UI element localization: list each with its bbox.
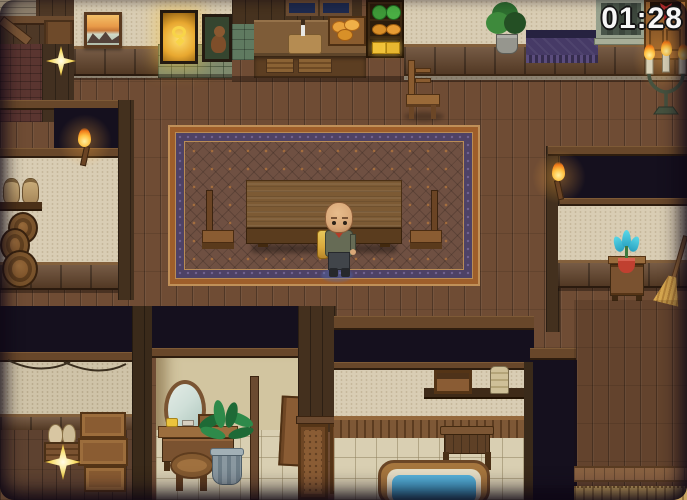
character-eye xyxy=(343,221,347,225)
character-head xyxy=(325,202,353,233)
cabbage xyxy=(372,5,387,20)
bread-loaf xyxy=(372,24,387,35)
jewelry-display-case xyxy=(160,10,198,64)
plant-foliage xyxy=(504,12,526,34)
shelf-board xyxy=(0,202,42,211)
necklace-pendant xyxy=(175,37,184,46)
candle-flame xyxy=(678,44,687,60)
painting-mountains xyxy=(87,27,119,43)
shelf-box xyxy=(434,370,472,394)
plant-pot xyxy=(212,455,242,485)
bathtub xyxy=(378,460,490,500)
room-shadow-band xyxy=(152,306,300,352)
barrel xyxy=(2,250,38,288)
vase-pot xyxy=(618,258,635,273)
towel xyxy=(444,434,490,454)
timer-label: 01:28 xyxy=(601,2,683,36)
wall-post xyxy=(132,306,152,500)
broom-handle xyxy=(670,235,687,283)
chair-leg xyxy=(409,107,414,119)
knife-handle xyxy=(301,19,305,25)
room-shadow-band xyxy=(334,330,534,364)
character-eye xyxy=(332,221,336,225)
produce-shelf xyxy=(366,0,404,58)
kitchen-window xyxy=(320,0,352,16)
gold-trinket xyxy=(166,418,178,427)
counter-basket xyxy=(298,58,332,73)
shelf-jar xyxy=(490,366,509,394)
knife-blade xyxy=(301,24,305,36)
trophy-display-case xyxy=(202,14,232,62)
room-lintel xyxy=(152,348,300,358)
stacked-crate xyxy=(84,466,126,492)
character-brow xyxy=(342,217,348,219)
stool-right-seat xyxy=(410,230,442,243)
game-viewport[interactable]: 01:28 xyxy=(0,0,687,500)
plant-pot xyxy=(496,34,518,54)
grain-sack xyxy=(3,178,20,204)
bread-crate xyxy=(328,16,366,46)
floor-mat xyxy=(574,486,687,500)
stool-left-seat xyxy=(202,230,234,243)
plant-leaf xyxy=(227,425,255,442)
wall-base-shadow xyxy=(232,76,404,82)
counter-basket xyxy=(266,58,294,73)
cheese xyxy=(386,42,400,54)
shelf-row xyxy=(370,21,400,36)
comb xyxy=(182,420,194,426)
candle-flame xyxy=(644,44,655,60)
trophy-creature-head xyxy=(214,26,225,37)
purple-cloth-bench xyxy=(526,38,598,56)
bread-loaf xyxy=(386,24,401,35)
bathroom-wainscot xyxy=(334,416,530,440)
candelabra xyxy=(642,40,687,118)
character-brow xyxy=(331,217,337,219)
kitchen-window xyxy=(286,0,318,16)
character-boot xyxy=(341,268,350,277)
wooden-screen-panel xyxy=(298,424,328,500)
flower-vase xyxy=(612,230,642,274)
landscape-painting xyxy=(84,12,122,48)
candle-flame xyxy=(661,40,672,56)
stool-right-front xyxy=(410,243,442,249)
wainscot xyxy=(74,46,158,76)
room-lintel xyxy=(530,348,576,360)
trophy-creature-body xyxy=(211,35,226,53)
cutting-board xyxy=(288,34,322,54)
wall-post xyxy=(524,362,533,500)
gold-necklace xyxy=(172,26,186,38)
wall-pillar xyxy=(298,306,336,432)
character-boot xyxy=(329,268,338,277)
stacked-crate xyxy=(80,412,126,438)
torch-flame xyxy=(552,162,565,181)
room-lintel xyxy=(334,316,534,330)
wall-post xyxy=(118,100,134,300)
shelf-row xyxy=(370,39,400,55)
player-character[interactable] xyxy=(316,200,358,286)
maroon-brick-wall xyxy=(0,44,42,122)
shelf-row xyxy=(370,4,400,19)
dark-gap xyxy=(533,360,577,500)
grain-sack xyxy=(22,178,39,204)
bathtub-water xyxy=(392,475,476,500)
cheese xyxy=(372,42,386,54)
chair-slat xyxy=(415,78,431,83)
character-arm xyxy=(350,234,356,250)
hanging-ropes xyxy=(4,358,128,376)
room-shadow-band xyxy=(0,306,148,356)
wall-base-shadow xyxy=(74,74,158,80)
chair-leg xyxy=(431,105,436,119)
wood-step-band xyxy=(574,466,687,482)
character-hand xyxy=(350,249,356,255)
wall-base-shadow xyxy=(158,74,232,80)
stool-left-front xyxy=(202,243,234,249)
bench-fringe xyxy=(526,55,598,63)
wall-base-shadow xyxy=(0,288,120,293)
bread-loaf xyxy=(337,29,353,41)
chair-slat xyxy=(415,68,431,73)
stacked-crate xyxy=(78,438,128,466)
torch-flame xyxy=(78,128,91,147)
cabbage xyxy=(386,5,401,20)
broom xyxy=(648,234,687,306)
